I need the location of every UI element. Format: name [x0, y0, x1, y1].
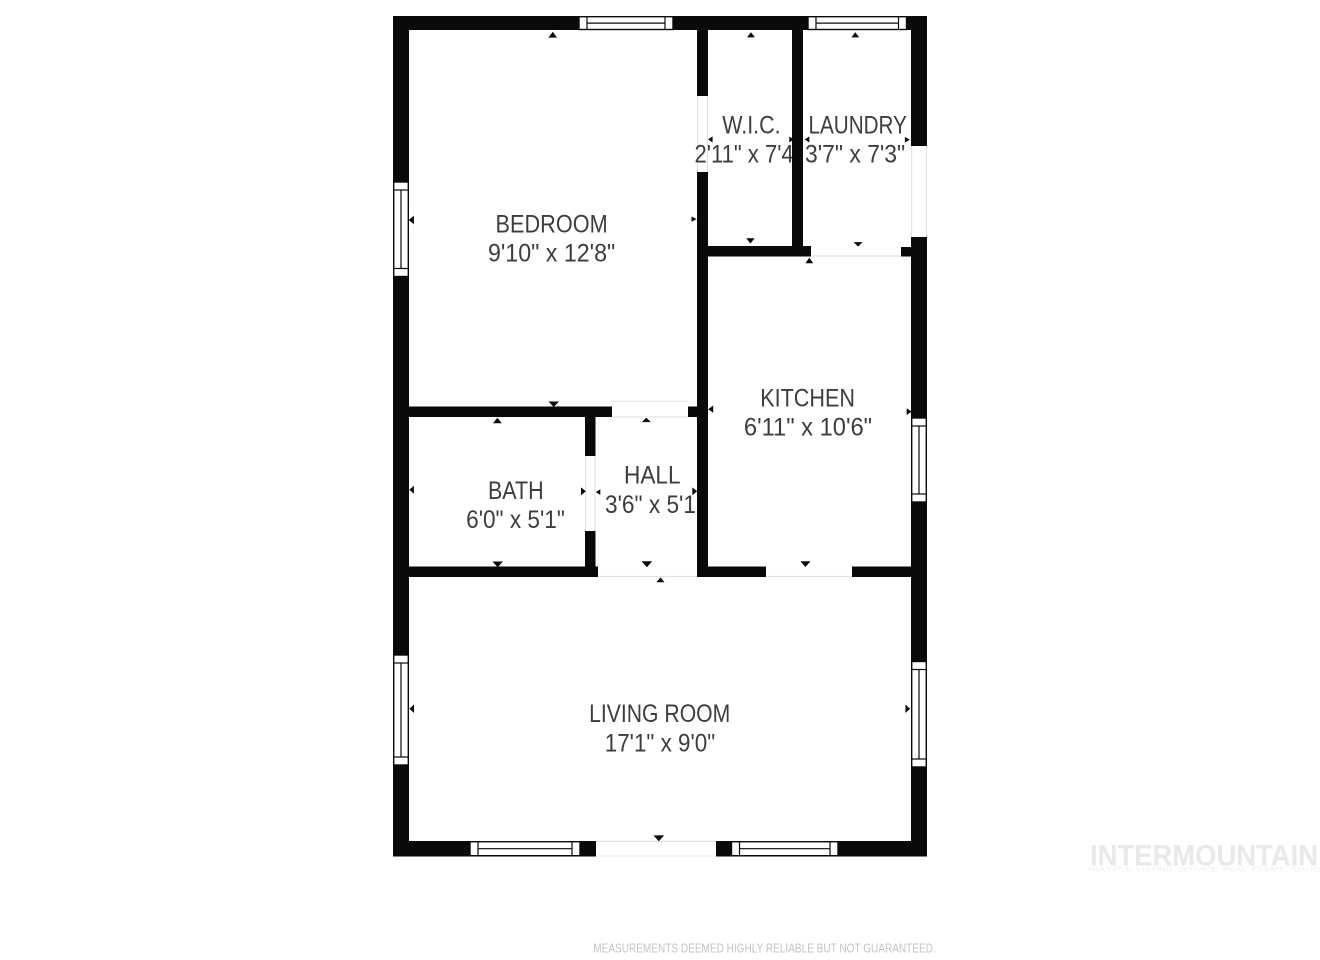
svg-text:6'0" x 5'1": 6'0" x 5'1" — [466, 506, 565, 534]
svg-text:LAUNDRY: LAUNDRY — [809, 112, 908, 140]
svg-text:9'10" x 12'8": 9'10" x 12'8" — [488, 239, 615, 267]
svg-text:W.I.C.: W.I.C. — [722, 112, 780, 140]
svg-text:3'7" x 7'3": 3'7" x 7'3" — [805, 141, 905, 169]
svg-text:3'6" x 5'1": 3'6" x 5'1" — [605, 491, 704, 519]
svg-text:BATH: BATH — [488, 477, 544, 505]
svg-text:MULTIPLE LISTING SERVICE RE: MULTIPLE LISTING SERVICE REAL ESTATE IDA… — [1088, 867, 1320, 874]
svg-text:LIVING ROOM: LIVING ROOM — [589, 700, 730, 728]
svg-text:6'11" x 10'6": 6'11" x 10'6" — [744, 413, 872, 441]
svg-text:MEASUREMENTS DEEMED HIGHLY REL: MEASUREMENTS DEEMED HIGHLY RELIABLE BUT … — [593, 942, 936, 956]
svg-text:HALL: HALL — [624, 462, 681, 490]
svg-text:BEDROOM: BEDROOM — [496, 211, 608, 239]
svg-text:17'1" x 9'0": 17'1" x 9'0" — [605, 729, 716, 757]
svg-text:2'11" x 7'4": 2'11" x 7'4" — [695, 141, 802, 169]
svg-text:KITCHEN: KITCHEN — [760, 385, 855, 413]
